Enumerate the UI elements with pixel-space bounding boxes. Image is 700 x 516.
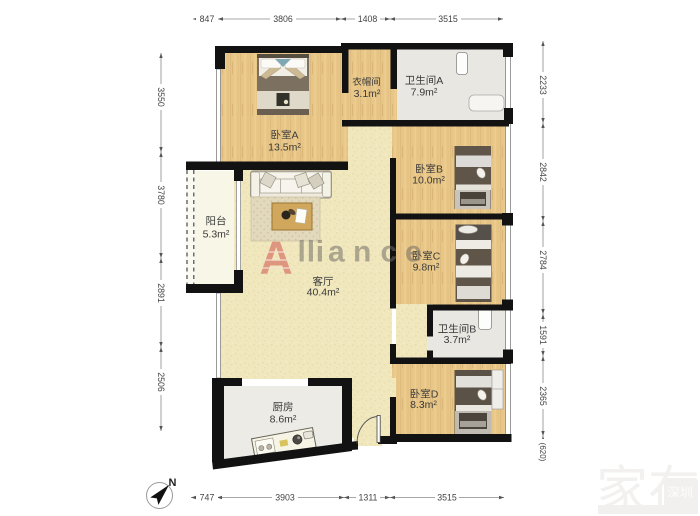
svg-text:3.1m²: 3.1m²: [354, 88, 381, 100]
svg-text:A: A: [436, 75, 443, 87]
svg-text:2842: 2842: [538, 162, 548, 182]
svg-text:3515: 3515: [437, 493, 457, 503]
svg-text:3903: 3903: [275, 493, 295, 503]
svg-text:8.6m²: 8.6m²: [270, 414, 297, 426]
svg-text:2365: 2365: [538, 386, 548, 406]
svg-text:a: a: [328, 236, 345, 269]
svg-text:l: l: [298, 236, 306, 269]
svg-text:1591: 1591: [538, 325, 548, 345]
svg-text:1408: 1408: [358, 14, 378, 24]
svg-text:A: A: [260, 232, 293, 284]
svg-text:5.3m²: 5.3m²: [203, 229, 230, 241]
svg-text:e: e: [405, 236, 422, 269]
svg-text:3515: 3515: [438, 14, 458, 24]
svg-text:3780: 3780: [156, 185, 166, 205]
svg-text:7.9m²: 7.9m²: [411, 87, 438, 99]
svg-text:N: N: [169, 477, 177, 489]
svg-text:747: 747: [200, 493, 215, 503]
svg-text:3550: 3550: [156, 87, 166, 107]
svg-text:40.4m²: 40.4m²: [307, 287, 340, 299]
svg-text:2506: 2506: [156, 372, 166, 392]
svg-text:i: i: [316, 236, 324, 269]
svg-text:A: A: [292, 130, 299, 142]
svg-text:2784: 2784: [538, 250, 548, 270]
svg-text:3.7m²: 3.7m²: [444, 334, 471, 346]
svg-text:1311: 1311: [359, 493, 378, 503]
svg-text:c: c: [381, 236, 398, 269]
svg-text:2233: 2233: [538, 75, 548, 95]
svg-text:3806: 3806: [273, 14, 293, 24]
svg-text:10.0m²: 10.0m²: [412, 175, 445, 187]
svg-text:8.3m²: 8.3m²: [410, 399, 437, 411]
svg-text:(620): (620): [538, 443, 547, 462]
svg-text:847: 847: [200, 14, 215, 24]
svg-text:n: n: [353, 236, 371, 269]
svg-text:l: l: [307, 236, 315, 269]
svg-text:13.5m²: 13.5m²: [268, 142, 301, 154]
svg-text:2891: 2891: [156, 283, 166, 303]
